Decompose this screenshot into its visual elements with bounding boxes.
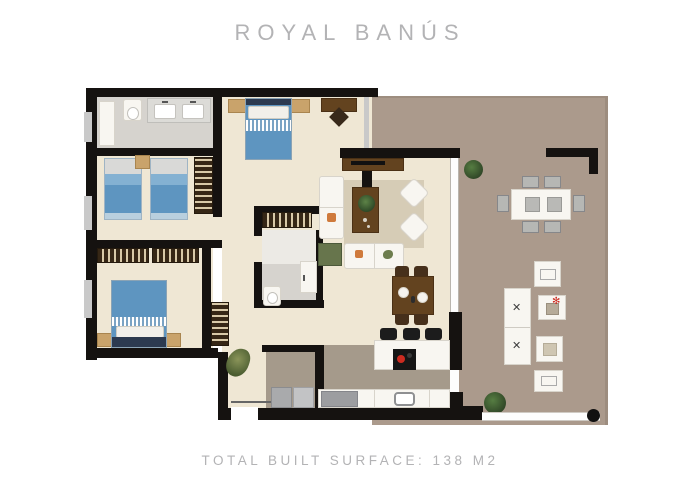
- faucet-2: [190, 101, 196, 103]
- dining-chair: [395, 314, 409, 325]
- bed-sheet: [151, 174, 187, 185]
- bed-sheet: [105, 174, 141, 185]
- sink-1: [154, 104, 176, 119]
- side-table-2: ✻: [538, 295, 566, 320]
- twin-bed-2: [150, 158, 188, 220]
- sofa-pillow-orange: [355, 250, 363, 258]
- tv-console: [342, 158, 404, 171]
- counter-seam: [374, 390, 375, 407]
- utility-cabinet: [271, 387, 292, 408]
- nightstand: [166, 333, 181, 347]
- bathroom2-closet: [262, 212, 312, 228]
- bed-foot: [105, 213, 141, 219]
- door-gap-lower: [450, 370, 459, 392]
- red-plant-icon: ✻: [552, 297, 560, 307]
- fridge: [321, 391, 358, 407]
- table-plant-tray: [358, 195, 375, 212]
- wall-divider: [213, 97, 222, 217]
- wall-bathroom2-right: [316, 230, 323, 304]
- side-table-4: [534, 370, 563, 392]
- floor-plan-page: ROYAL BANÚS: [0, 0, 700, 500]
- nightstand: [291, 99, 310, 113]
- side-table-1: [534, 261, 561, 287]
- placemat: [525, 197, 540, 212]
- outdoor-chair: [522, 176, 539, 188]
- outdoor-chair: [544, 221, 561, 233]
- hall-wardrobe: [211, 302, 229, 346]
- wall-bedroom2-right: [202, 248, 211, 352]
- sofa-cushion-line: [320, 207, 343, 208]
- fan-icon: ✕: [512, 341, 521, 352]
- bed-headboard: [112, 337, 166, 347]
- closet-1: [97, 248, 149, 263]
- outdoor-chair: [573, 195, 585, 212]
- utility-cabinet: [293, 387, 314, 408]
- sun-lounger-pair: ✕ ✕: [504, 288, 531, 365]
- railing-post: [587, 409, 600, 422]
- entrance-door-line: [231, 401, 273, 403]
- wall-twin-bedroom-bottom: [86, 240, 222, 248]
- terrace-railing: [482, 412, 600, 421]
- toilet-bowl: [267, 292, 278, 304]
- kitchen-counter: [318, 389, 450, 408]
- doorway-patch: [213, 217, 222, 240]
- wall-bedroom2-bottom: [86, 348, 218, 358]
- outdoor-chair: [497, 195, 509, 212]
- bathroom2-floor-upper: [262, 230, 318, 264]
- sliding-door: [450, 158, 459, 312]
- closet-2: [152, 248, 199, 263]
- sofa-section-left: [319, 176, 344, 239]
- bed-sheet-band: [112, 317, 166, 326]
- window-master-terrace: [364, 97, 369, 149]
- sink-2: [182, 104, 204, 119]
- floor-plan: ✕ ✕ ✻: [0, 0, 700, 500]
- kitchen-sink: [394, 392, 415, 406]
- tv-screen: [351, 161, 385, 165]
- window-left-1: [84, 112, 92, 142]
- plate: [417, 292, 428, 303]
- counter-seam: [429, 390, 430, 407]
- wall-top: [86, 88, 378, 97]
- terrace-plant-2: [484, 392, 506, 414]
- bed-foot: [151, 213, 187, 219]
- bed-headboard: [246, 99, 291, 105]
- window-left-2: [84, 196, 92, 230]
- burner: [407, 353, 412, 358]
- wall-terrace-v: [589, 148, 598, 174]
- bed-pillow: [151, 159, 187, 174]
- double-bed: [111, 280, 167, 348]
- vanity: [300, 261, 317, 293]
- cushion: [543, 343, 557, 356]
- burner-red: [397, 355, 405, 363]
- side-table-3: [536, 336, 563, 362]
- fan-icon: ✕: [512, 303, 521, 314]
- lounger-divider: [505, 327, 530, 328]
- bar-stool: [403, 328, 420, 340]
- nightstand: [97, 333, 112, 347]
- terrace-plant-1: [464, 160, 483, 179]
- chair-outline: [541, 376, 557, 386]
- outdoor-chair: [522, 221, 539, 233]
- shower: [99, 101, 115, 146]
- vanity-double: [147, 98, 211, 123]
- outdoor-dining-table: [511, 189, 571, 220]
- faucet: [303, 275, 305, 281]
- table-decor-dot: [367, 225, 370, 228]
- plate: [398, 287, 409, 298]
- toilet-bowl: [127, 107, 139, 120]
- sofa-pillow-green: [383, 250, 393, 259]
- kitchen-island: [374, 340, 450, 370]
- wall-corner-2: [461, 406, 483, 420]
- dining-chair: [414, 314, 428, 325]
- plan-caption: TOTAL BUILT SURFACE: 138 M2: [0, 453, 700, 468]
- dining-table: [392, 276, 434, 315]
- wall-utility-top: [262, 345, 322, 352]
- sofa-pillow-orange: [327, 213, 336, 222]
- bed-pillows: [248, 106, 289, 119]
- window-left-3: [84, 280, 92, 318]
- placemat: [547, 197, 562, 212]
- outdoor-chair: [544, 176, 561, 188]
- sofa-section-bottom: [344, 243, 404, 269]
- table-decor-dot: [363, 218, 367, 222]
- bar-stool: [425, 328, 442, 340]
- chair-outline: [540, 269, 556, 280]
- wardrobe: [194, 157, 213, 214]
- entrance-notch: [231, 407, 258, 420]
- wall-bathroom2-left-top: [254, 214, 262, 236]
- bed-sheet-band: [246, 120, 291, 131]
- faucet-1: [162, 101, 168, 103]
- master-bed: [245, 98, 292, 160]
- toilet: [263, 286, 281, 306]
- wall-right-lower: [449, 312, 462, 370]
- sofa-cushion-line: [374, 244, 375, 268]
- wall-tv: [340, 148, 460, 158]
- coffee-table: [352, 187, 379, 233]
- nightstand: [135, 155, 150, 169]
- bar-stool: [380, 328, 397, 340]
- cooktop: [393, 349, 416, 370]
- toilet: [123, 99, 142, 121]
- bottle: [411, 296, 415, 303]
- armchair-green: [318, 243, 342, 266]
